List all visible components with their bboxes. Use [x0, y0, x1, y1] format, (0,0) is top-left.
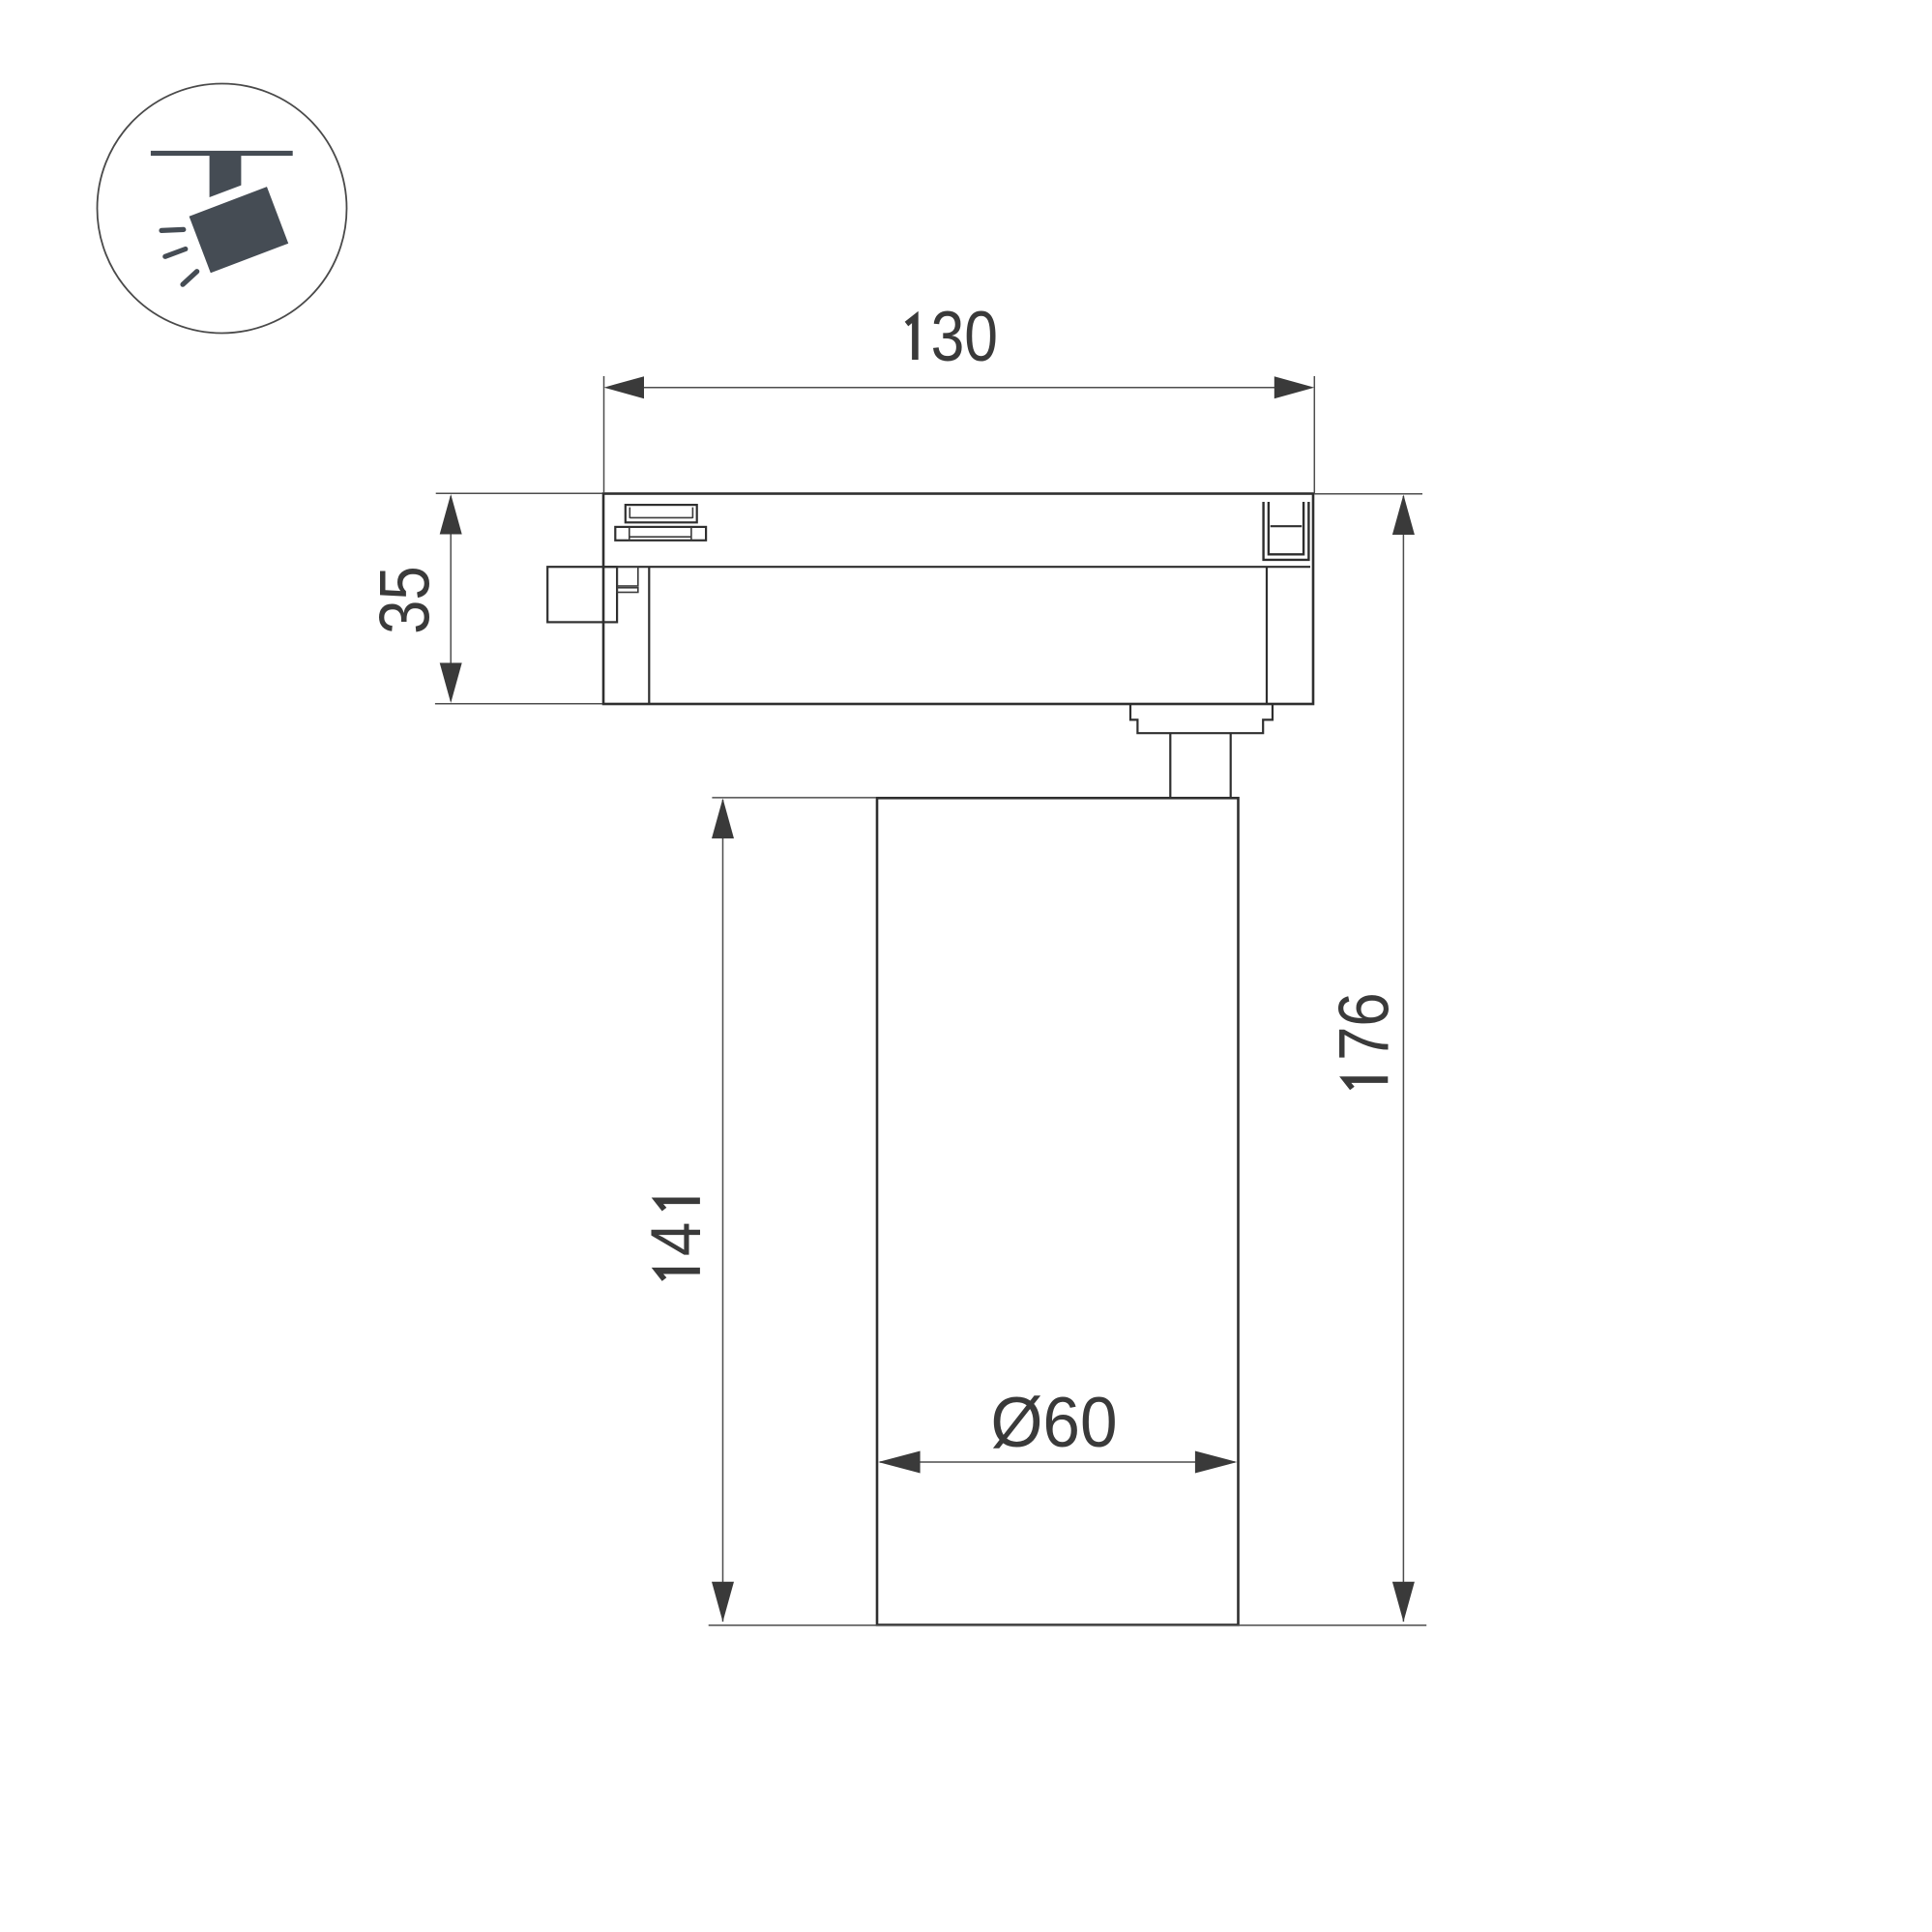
- svg-text:4: 4: [637, 1222, 716, 1256]
- svg-text:35: 35: [366, 566, 444, 634]
- svg-text:76: 76: [1325, 992, 1403, 1061]
- svg-text:Ø60: Ø60: [990, 1384, 1117, 1462]
- svg-text:30: 30: [931, 299, 998, 377]
